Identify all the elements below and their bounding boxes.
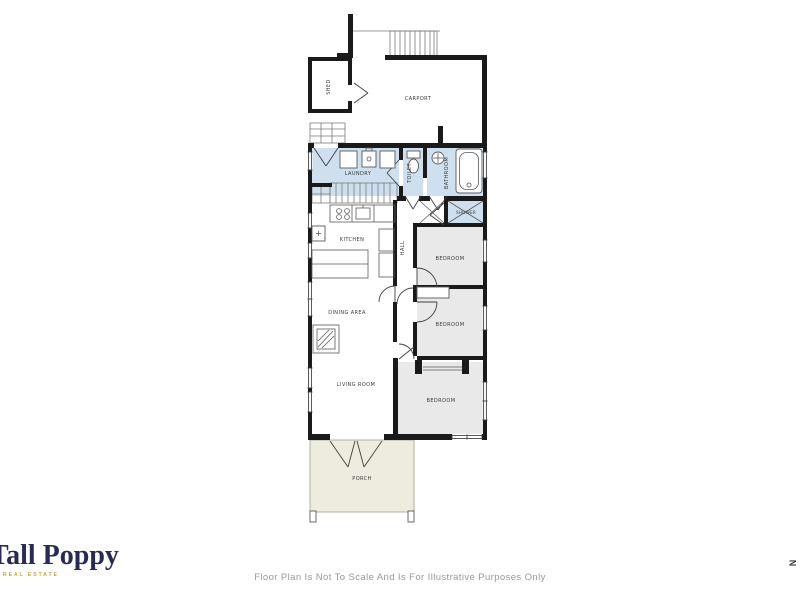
porch-posts [310,511,414,522]
label-bedroom-1: BEDROOM [436,256,465,262]
external-steps-side [310,123,345,143]
label-toilet: TOILET [407,163,413,184]
door-swing [379,286,395,302]
door-swing [420,201,444,225]
kitchen-sink [356,205,370,219]
door-swing [354,83,368,103]
label-bathroom: BATHROOM [444,157,450,189]
label-hall: HALL [400,241,406,255]
kitchen-bench [312,250,368,278]
stove [337,209,350,220]
dryer [380,151,395,168]
kitchen-cabinets [379,229,394,277]
door-swing [405,196,421,209]
bathroom-sink [432,152,444,164]
washing-machine [340,151,357,168]
window [452,435,482,440]
label-shower: SHOWER [456,210,476,215]
window [308,282,313,316]
refrigerator [312,226,325,241]
window [483,240,488,262]
floor-plan-page: SHED CARPORT LAUNDRY TOILET BATHROOM SHO… [0,0,800,600]
laundry-sink [362,148,376,167]
north-indicator: N [787,560,797,567]
label-bedroom-3: BEDROOM [427,398,456,404]
external-stairs-top [353,31,440,57]
window [308,152,313,170]
window [483,382,488,420]
tall-poppy-logo: Tall Poppy [0,542,119,570]
label-dining: DINING AREA [328,310,366,316]
window [308,368,313,388]
bathtub [456,149,482,193]
disclaimer-text: Floor Plan Is Not To Scale And Is For Il… [0,572,800,583]
window [483,152,488,178]
label-shed: SHED [326,79,332,95]
label-porch: PORCH [352,476,371,482]
label-bedroom-2: BEDROOM [436,322,465,328]
window [483,306,488,330]
label-laundry: LAUNDRY [345,171,372,177]
wardrobe [417,287,449,298]
floor-plan-drawing: SHED CARPORT LAUNDRY TOILET BATHROOM SHO… [0,0,800,600]
label-carport: CARPORT [405,96,432,102]
window [308,392,313,412]
label-kitchen: KITCHEN [340,237,364,243]
label-living: LIVING ROOM [337,382,375,388]
door-swing [399,344,414,359]
fireplace [313,325,339,353]
